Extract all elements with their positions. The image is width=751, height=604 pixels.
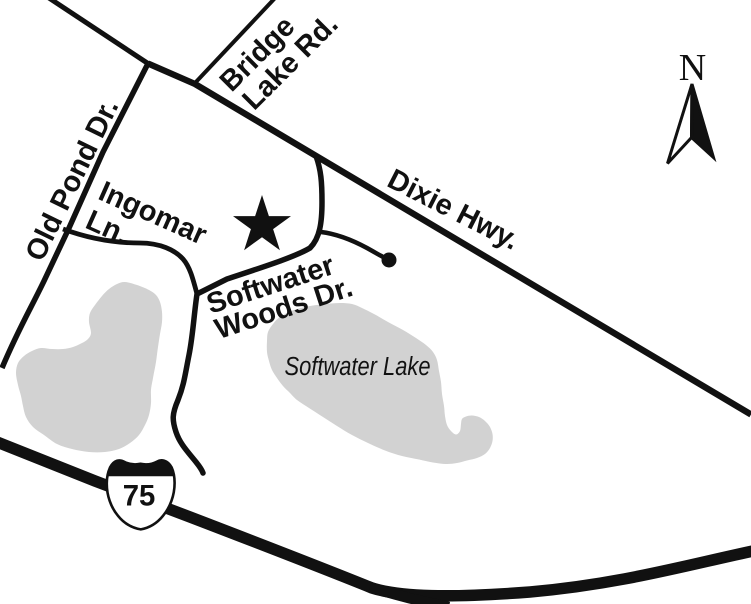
svg-text:N: N	[679, 47, 706, 89]
svg-text:75: 75	[123, 480, 156, 513]
svg-text:Softwater Lake: Softwater Lake	[285, 353, 431, 381]
